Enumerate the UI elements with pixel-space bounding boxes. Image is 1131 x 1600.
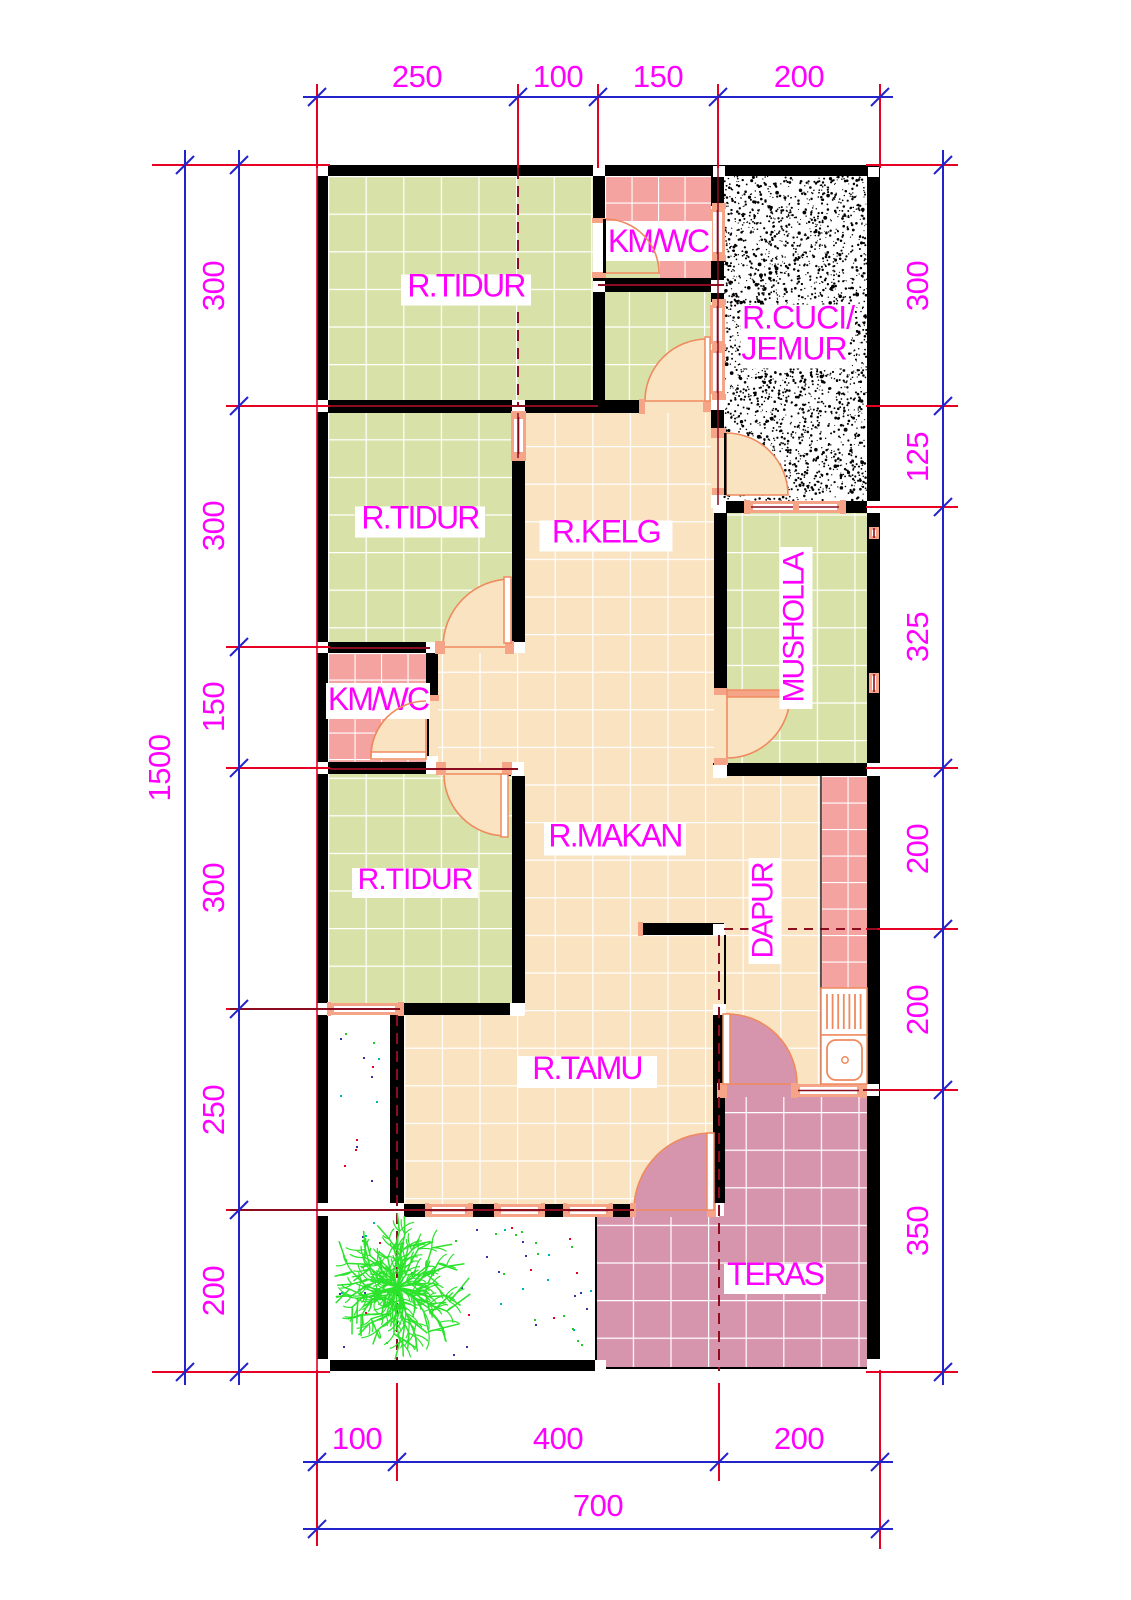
svg-text:300: 300 (196, 501, 231, 551)
svg-text:100: 100 (332, 1421, 382, 1456)
svg-text:200: 200 (900, 985, 935, 1035)
svg-text:200: 200 (774, 1421, 824, 1456)
svg-text:R.TAMU: R.TAMU (532, 1050, 641, 1086)
svg-text:DAPUR: DAPUR (747, 862, 780, 958)
svg-text:R.MAKAN: R.MAKAN (548, 818, 681, 854)
svg-text:250: 250 (392, 59, 442, 94)
svg-text:150: 150 (196, 682, 231, 732)
svg-text:150: 150 (633, 59, 683, 94)
svg-text:100: 100 (533, 59, 583, 94)
svg-text:KM/WC: KM/WC (608, 223, 709, 259)
svg-text:200: 200 (774, 59, 824, 94)
svg-text:R.TIDUR: R.TIDUR (358, 863, 473, 896)
svg-text:TERAS: TERAS (727, 1256, 824, 1292)
svg-text:300: 300 (900, 261, 935, 311)
svg-text:300: 300 (196, 863, 231, 913)
svg-text:R.TIDUR: R.TIDUR (407, 268, 525, 304)
svg-text:325: 325 (900, 612, 935, 662)
svg-text:200: 200 (900, 824, 935, 874)
svg-text:R.KELG: R.KELG (552, 514, 660, 550)
svg-text:R.TIDUR: R.TIDUR (361, 500, 479, 536)
svg-text:MUSHOLLA: MUSHOLLA (778, 551, 811, 702)
svg-text:200: 200 (196, 1266, 231, 1316)
svg-text:KM/WC: KM/WC (328, 681, 429, 717)
svg-text:350: 350 (900, 1206, 935, 1256)
svg-text:1500: 1500 (142, 734, 177, 801)
svg-text:125: 125 (900, 432, 935, 482)
svg-text:700: 700 (573, 1488, 623, 1523)
svg-text:JEMUR: JEMUR (741, 331, 846, 367)
svg-text:400: 400 (533, 1421, 583, 1456)
svg-text:250: 250 (196, 1085, 231, 1135)
svg-text:300: 300 (196, 261, 231, 311)
